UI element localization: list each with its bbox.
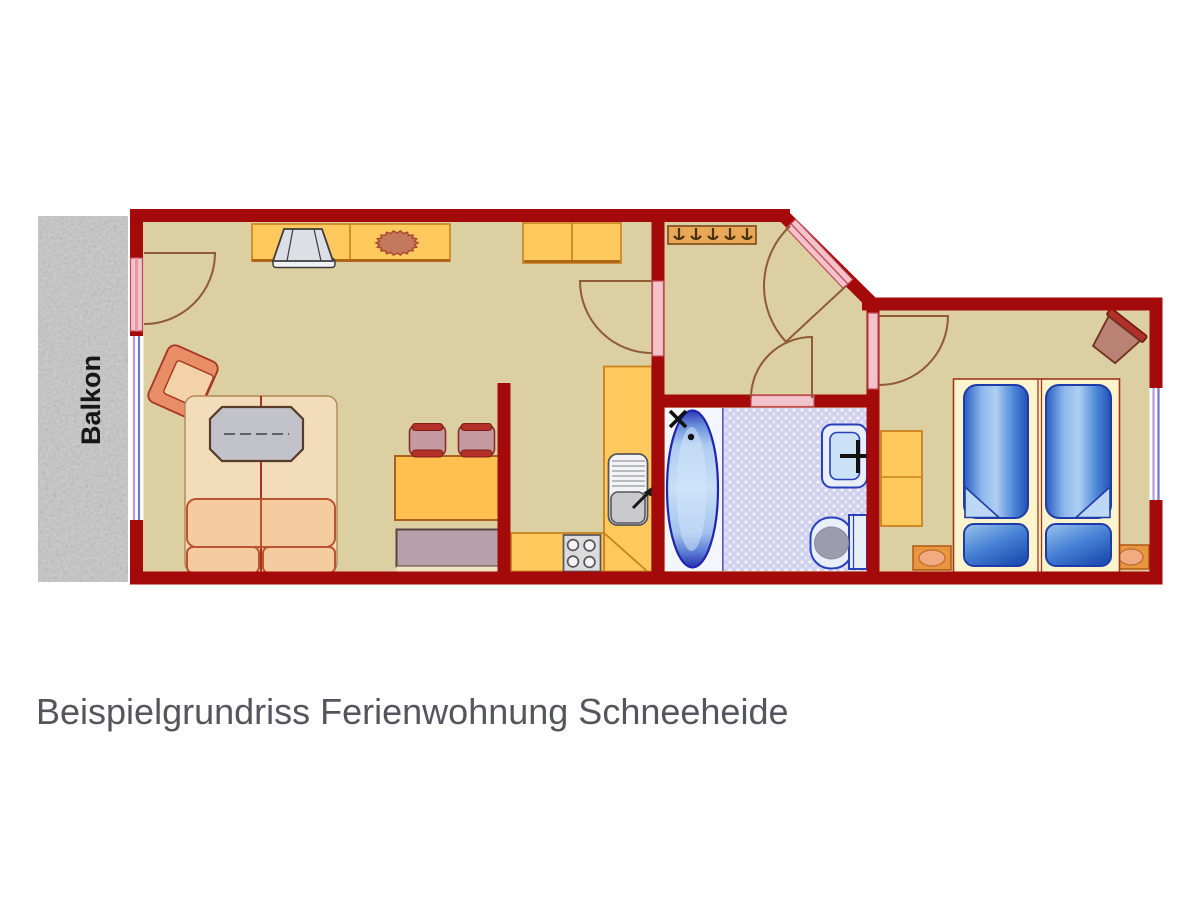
svg-text:Balkon: Balkon (76, 355, 106, 445)
